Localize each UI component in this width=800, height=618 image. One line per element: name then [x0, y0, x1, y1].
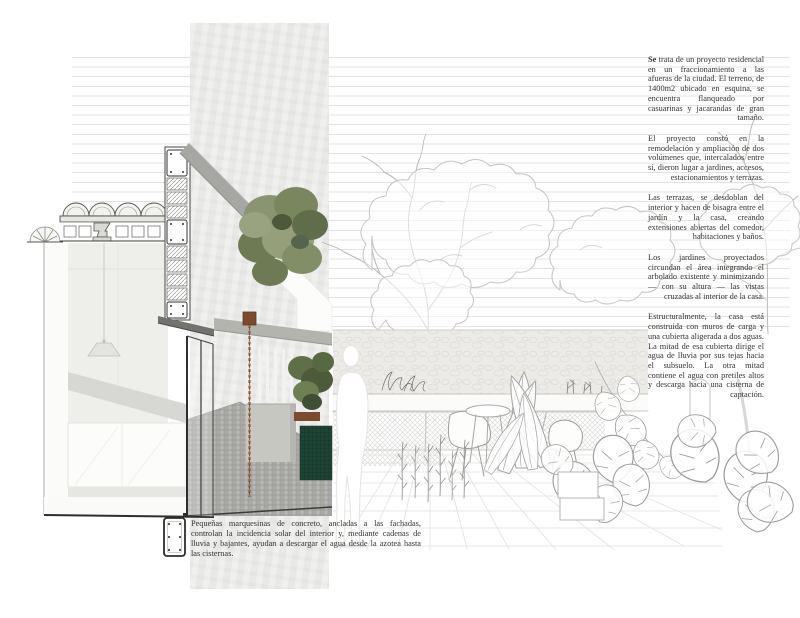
paragraph-5: Estructuralmente, la casa está construid…: [648, 312, 764, 399]
beam-band-detail: [60, 222, 168, 241]
paragraph-2: El proyecto constó en la remodelación y …: [648, 134, 764, 183]
green-tile-fountain: [300, 426, 332, 480]
paragraph-1: Se trata de un proyecto residencial en u…: [648, 55, 764, 123]
round-table-sketch: [466, 405, 510, 417]
foliage-photo: [288, 352, 334, 410]
portfolio-board: Se trata de un proyecto residencial en u…: [0, 0, 800, 618]
planter-boxes: [558, 472, 604, 520]
paragraph-4: Los jardines proyectados circundan el ár…: [648, 253, 764, 302]
cabinet: [68, 423, 186, 497]
glass-facade: [187, 336, 213, 517]
arch-ornament: [27, 227, 63, 242]
stone-wall-sketch: [333, 330, 648, 396]
planter-wall: [246, 404, 296, 462]
pergola-slats: [258, 346, 293, 402]
rebar-detail-icon: [164, 513, 188, 556]
marquee-caption: Pequeñas marquesinas de concreto, anclad…: [191, 519, 421, 559]
wall-section-column: [165, 147, 190, 320]
water-spout: [294, 412, 320, 421]
paragraph-3: Las terrazas, se desdoblan del interior …: [648, 193, 764, 242]
vaulted-ceiling-detail: [60, 203, 168, 222]
description-column: Se trata de un proyecto residencial en u…: [648, 55, 764, 411]
tree-photo-collage: [238, 187, 328, 286]
